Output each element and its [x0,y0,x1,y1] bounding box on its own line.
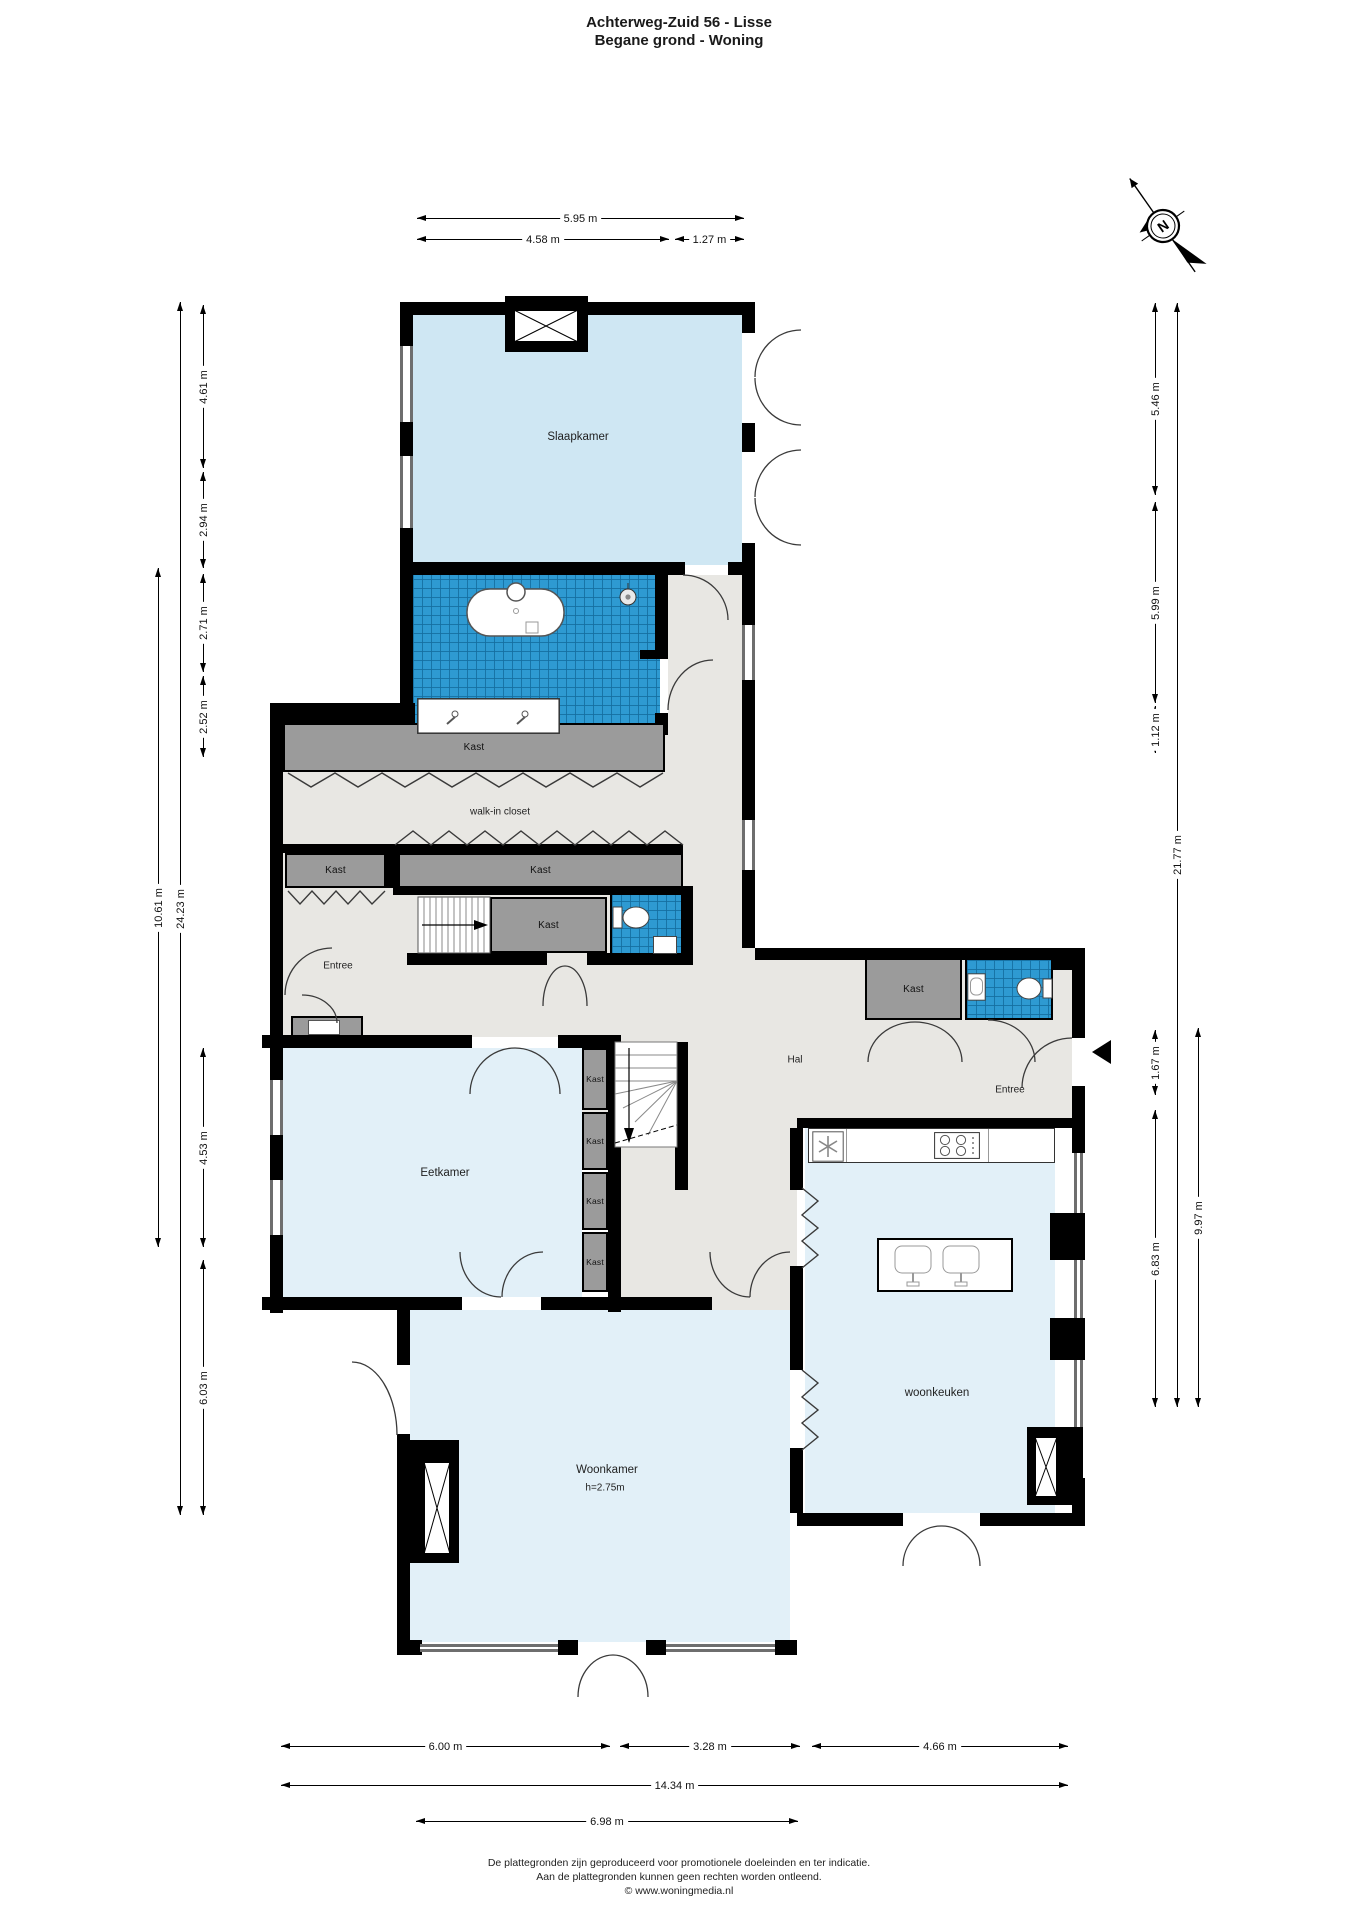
closet-hal: Kast [865,958,962,1020]
room-label-slaapkamer: Slaapkamer [547,431,608,443]
wall [1072,1118,1085,1153]
wall [980,1513,1085,1526]
door-arc [352,1362,397,1435]
door-arc [285,948,332,995]
entrance-door-arc [1022,1038,1072,1088]
staircase-straight [418,897,490,953]
wall [640,650,668,659]
counter-divider [846,1129,847,1162]
wall [270,703,415,723]
closet-label: Kast [464,742,485,753]
closet-eetkamer-4: Kast [582,1232,608,1292]
floorplan-page: { "title": { "line1": "Achterweg-Zuid 56… [0,0,1358,1920]
fireplace-flue-icon [1035,1437,1057,1497]
room-label-entree-left: Entree [323,961,352,972]
double-door-arc [578,1655,648,1697]
window [270,1080,283,1135]
double-door-arc [903,1526,980,1566]
footer-copyright: © www.woningmedia.nl [0,1884,1358,1898]
wall [742,423,755,452]
wall [790,1448,803,1513]
wall [728,562,755,575]
closet-label: Kast [325,865,346,876]
door-arc [683,575,728,620]
dimension-left: 6.03 m [196,1260,211,1515]
wall [797,1513,903,1526]
dimension-left: 4.61 m [196,305,211,468]
hob-icon [934,1132,980,1159]
wall [1050,1318,1085,1360]
entrance-arrow-icon [1092,1040,1111,1064]
dimension-right: 1.67 m [1148,1030,1163,1095]
dimension-top: 1.27 m [675,232,744,247]
double-door-arc [543,966,587,1006]
floor-woonkeuken [805,1128,1055,1513]
double-door-arc [755,450,801,545]
wall [397,1640,422,1655]
double-washbasin [417,698,560,734]
dimension-right: 5.46 m [1148,303,1163,495]
dimension-right-partial: 9.97 m [1191,1028,1206,1407]
wall [775,1640,797,1655]
dimension-left: 4.53 m [196,1048,211,1247]
wall [558,1640,578,1655]
closet-label: Kast [586,1136,604,1146]
hand-basin [653,936,677,954]
wall [646,1640,666,1655]
footer-line-1: De plattegronden zijn geproduceerd voor … [0,1856,1358,1870]
closet-eetkamer-2: Kast [582,1112,608,1170]
wall [1072,948,1085,1038]
double-door-arc [710,1252,790,1297]
closet-under-stairs: Kast [490,897,607,953]
double-door-arc [470,1048,560,1094]
wall [790,1128,803,1190]
plan-title: Achterweg-Zuid 56 - Lisse Begane grond -… [0,14,1358,50]
hand-basin [967,973,986,1001]
dimension-bottom: 4.66 m [812,1739,1068,1754]
footer-line-2: Aan de plattegronden kunnen geen rechten… [0,1870,1358,1884]
floor-woonkamer [410,1310,790,1642]
plan-title-address: Achterweg-Zuid 56 - Lisse [0,14,1358,32]
toilet [612,903,652,933]
dimension-right: 6.83 m [1148,1110,1163,1407]
closet-walkin-south: Kast [398,853,683,888]
staircase-winder [615,1042,677,1147]
closet-label: Kast [903,984,924,995]
dimension-top: 4.58 m [417,232,669,247]
compass-north-icon: N [1105,160,1221,294]
fireplace-flue-icon [424,1462,450,1554]
dimension-right: 5.99 m [1148,502,1163,703]
extractor-appliance-icon [812,1131,844,1162]
folding-doors [288,890,385,905]
closet-label: Kast [530,865,551,876]
double-door-arc [755,330,801,425]
window [420,1644,558,1652]
dimension-left: 2.52 m [196,676,211,757]
dimension-bottom-partial: 6.98 m [416,1814,798,1829]
double-door-arc [460,1252,543,1297]
dimension-top: 5.95 m [417,211,744,226]
room-label-woonkamer: Woonkamer [576,1464,638,1476]
window [400,346,413,422]
closet-walkin-west: Kast [285,853,386,888]
wall [742,302,755,333]
room-label-woonkamer-height: h=2.75m [585,1483,624,1494]
window [666,1644,775,1652]
footer-disclaimer: De plattegronden zijn geproduceerd voor … [0,1856,1358,1898]
folding-doors [395,830,683,847]
shower-head-icon [616,583,640,607]
wall [407,953,547,965]
closet-eetkamer-1: Kast [582,1048,608,1110]
folding-doors [800,1370,820,1450]
closet-eetkamer-3: Kast [582,1172,608,1230]
wall [587,953,693,965]
room-label-walk-in-closet: walk-in closet [470,807,530,818]
wall [655,570,668,655]
closet-label: Kast [586,1196,604,1206]
dimension-left: 2.94 m [196,472,211,568]
room-label-entree-right: Entree [995,1085,1024,1096]
dimension-bottom-total: 14.34 m [281,1778,1068,1793]
closet-label: Kast [538,920,559,931]
kitchen-island [877,1238,1013,1292]
window [742,625,755,680]
dimension-right-total: 21.77 m [1170,303,1185,1407]
window [742,820,755,870]
window [270,1180,283,1235]
window [400,456,413,528]
wall [683,886,693,965]
counter-divider [988,1129,989,1162]
folding-doors [288,772,663,789]
folding-doors [800,1188,820,1268]
wall [400,562,685,575]
closet-label: Kast [586,1257,604,1267]
wall [541,1297,712,1310]
wall [262,1297,462,1310]
closet-label: Kast [586,1074,604,1084]
dimension-bottom: 6.00 m [281,1739,610,1754]
door-arc [302,995,337,1023]
dimension-bottom: 3.28 m [620,1739,800,1754]
dimension-left-total: 24.23 m [173,302,188,1515]
wall [797,1118,1085,1128]
dimension-left-partial: 10.61 m [151,568,166,1247]
wall [1053,958,1072,970]
wall [1072,1086,1085,1118]
toilet [1016,973,1054,1004]
room-label-eetkamer: Eetkamer [420,1167,469,1179]
room-label-hal: Hal [787,1055,802,1066]
wall [1050,1213,1085,1260]
door-arc [668,660,713,710]
double-door-arc [868,1022,962,1062]
wall [790,1266,803,1370]
wall [397,1310,410,1365]
window-bay-icon [514,310,578,342]
bathtub [466,582,566,638]
dimension-right: 1.12 m [1148,706,1163,753]
wall [386,844,398,888]
wall [400,302,413,575]
room-label-woonkeuken: woonkeuken [905,1387,970,1399]
plan-title-floor: Begane grond - Woning [0,32,1358,50]
wall [558,1035,620,1048]
dimension-left: 2.71 m [196,574,211,672]
